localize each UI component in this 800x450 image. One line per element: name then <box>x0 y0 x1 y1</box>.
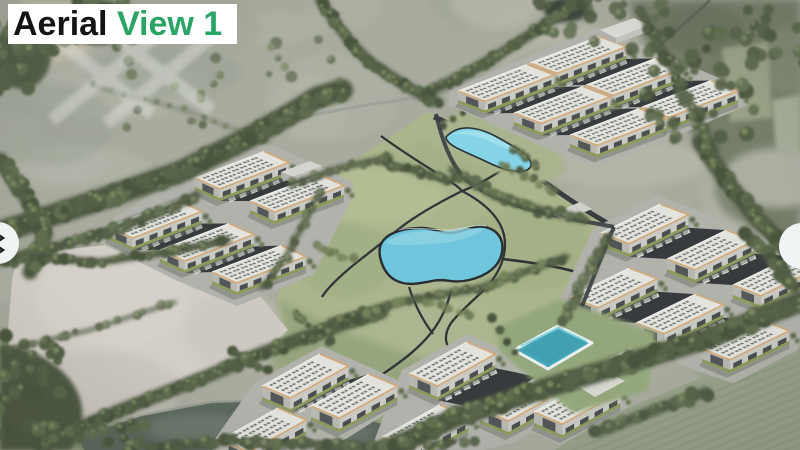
svg-text:Aerial View 1: Aerial View 1 <box>13 5 222 43</box>
